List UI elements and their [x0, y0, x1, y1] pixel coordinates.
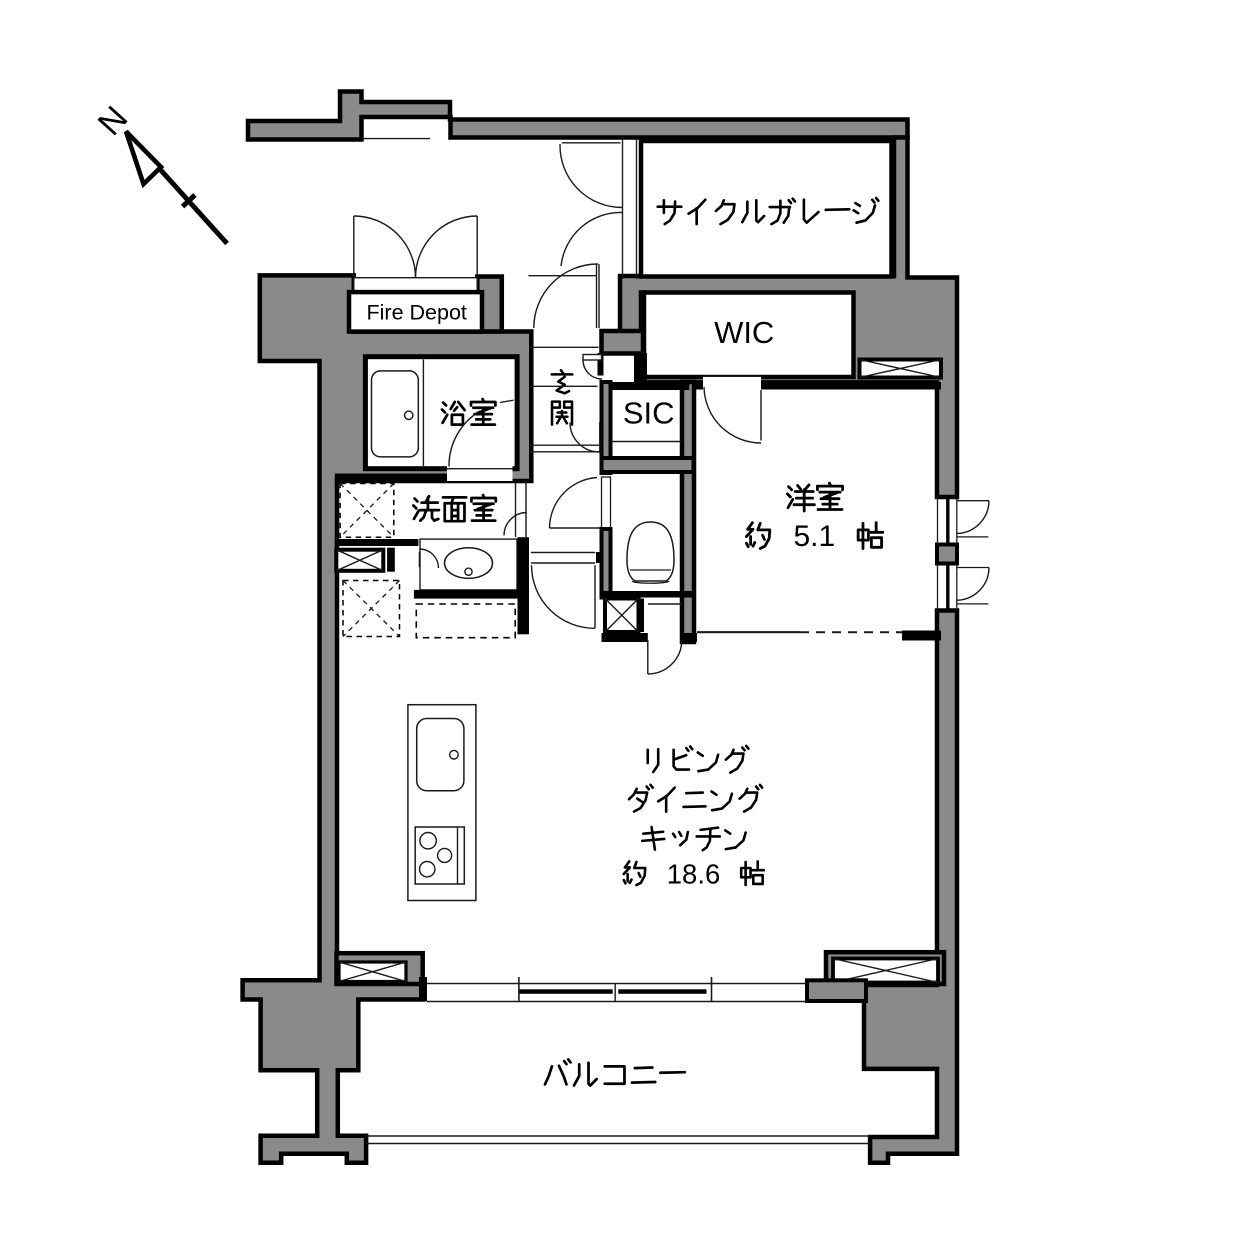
svg-text:Fire Depot: Fire Depot [367, 300, 467, 324]
svg-text:SIC: SIC [623, 396, 675, 431]
svg-text:5.1: 5.1 [793, 520, 835, 553]
svg-text:18.6: 18.6 [667, 859, 721, 890]
svg-text:WIC: WIC [714, 315, 774, 350]
